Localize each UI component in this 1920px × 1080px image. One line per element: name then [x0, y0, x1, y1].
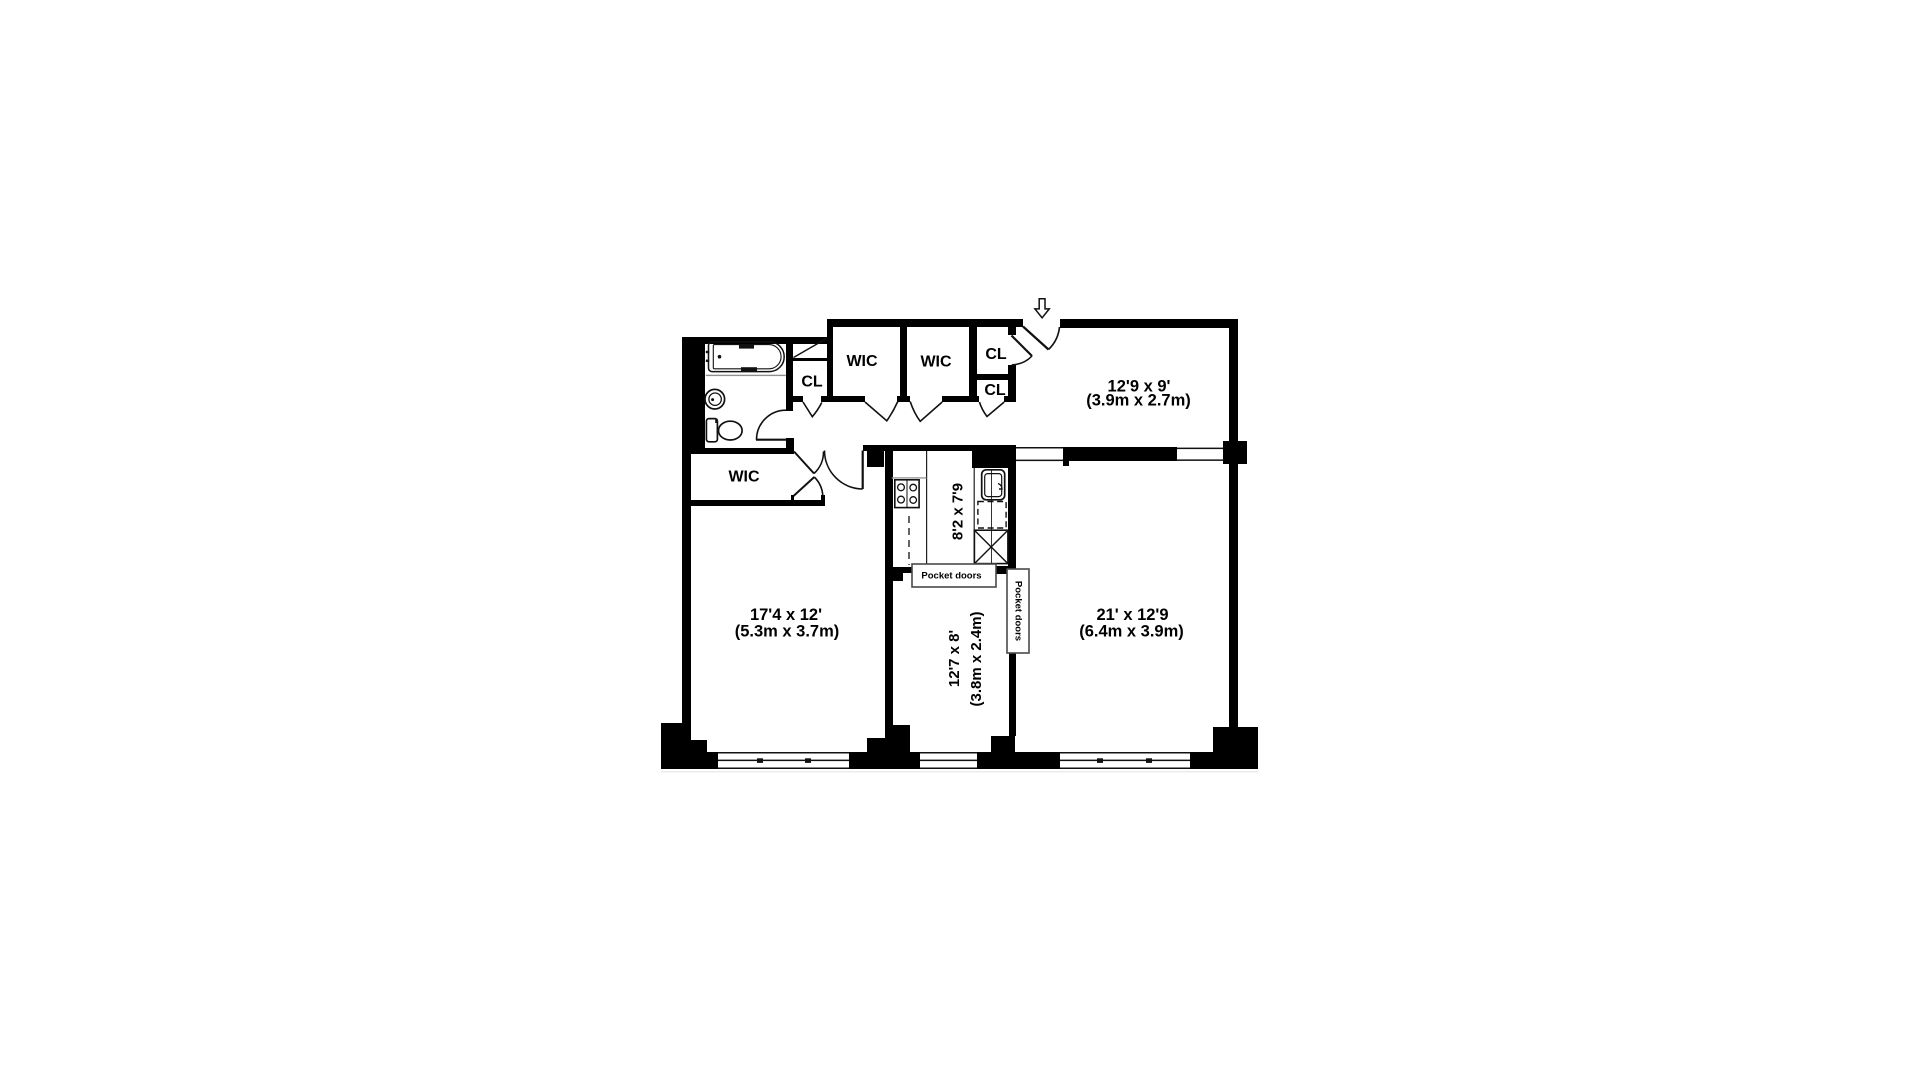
svg-text:(6.4m x 3.9m): (6.4m x 3.9m) — [1079, 622, 1184, 640]
svg-text:8'2 x 7'9: 8'2 x 7'9 — [950, 483, 967, 540]
svg-text:WIC: WIC — [920, 354, 952, 371]
svg-text:CL: CL — [984, 382, 1006, 399]
svg-text:17'4 x 12': 17'4 x 12' — [750, 606, 822, 624]
svg-text:(5.3m x 3.7m): (5.3m x 3.7m) — [735, 622, 840, 640]
svg-text:WIC: WIC — [728, 469, 760, 486]
svg-text:Pocket doors: Pocket doors — [921, 571, 981, 582]
svg-text:CL: CL — [985, 346, 1007, 363]
svg-text:Pocket doors: Pocket doors — [1013, 581, 1024, 641]
svg-text:WIC: WIC — [846, 353, 878, 370]
svg-text:(3.9m x 2.7m): (3.9m x 2.7m) — [1086, 391, 1191, 409]
svg-text:CL: CL — [801, 374, 823, 391]
svg-text:(3.8m x 2.4m): (3.8m x 2.4m) — [968, 611, 985, 706]
svg-text:12'7 x 8': 12'7 x 8' — [946, 630, 963, 687]
svg-text:21' x 12'9: 21' x 12'9 — [1096, 606, 1168, 624]
